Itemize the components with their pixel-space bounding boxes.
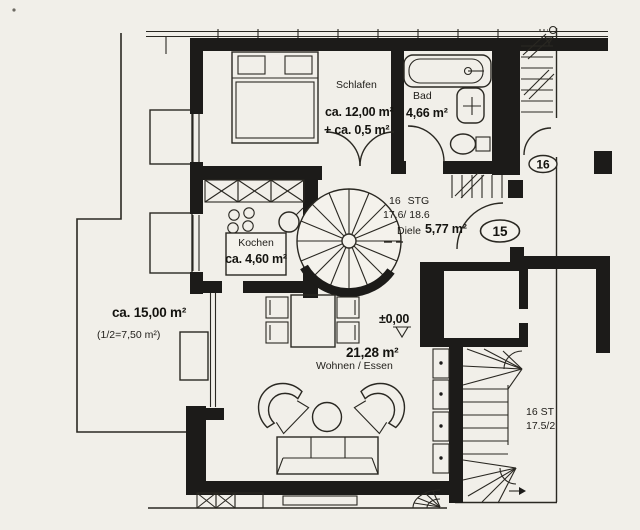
bad-room-label: Bad xyxy=(413,90,432,102)
terrasse-area-half-label: (1/2=7,50 m²) xyxy=(97,329,160,341)
kochen-area-label: ca. 4,60 m² xyxy=(225,252,287,266)
schlafen-room-label: Schlafen xyxy=(336,79,377,91)
apartment-15-number: 15 xyxy=(492,224,508,239)
schlafen-area-extra-label: + ca. 0,5 m² xyxy=(324,123,389,137)
floor-plan: ±0,00 15 16 Schlafen ca. 12,00 m² + ca. … xyxy=(0,0,640,530)
main-stair-dims-label: 17.5/2 xyxy=(526,420,555,432)
scan-speck xyxy=(12,8,15,11)
main-stair-count-label: 16 ST xyxy=(526,406,555,418)
diele-room-label: Diele xyxy=(397,225,421,237)
apartment-15-badge: 15 xyxy=(481,220,520,242)
diele-area-label: 5,77 m² xyxy=(425,222,467,236)
wohnen-room-label: Wohnen / Essen xyxy=(316,360,393,372)
bad-area-label: 4,66 m² xyxy=(406,106,448,120)
kochen-room-label: Kochen xyxy=(238,237,274,249)
terrasse-area-label: ca. 15,00 m² xyxy=(112,305,187,320)
spiral-stair-count-label: 16 STG xyxy=(389,195,429,207)
elevation-value: ±0,00 xyxy=(379,312,409,326)
apartment-16-number: 16 xyxy=(536,158,550,172)
schlafen-area-label: ca. 12,00 m² xyxy=(325,105,394,119)
spiral-stair-dims-label: 17.6/ 18.6 xyxy=(383,209,430,221)
apartment-16-badge: 16 xyxy=(529,156,557,173)
spiral-staircase xyxy=(297,189,403,293)
wohnen-area-label: 21,28 m² xyxy=(346,345,399,360)
